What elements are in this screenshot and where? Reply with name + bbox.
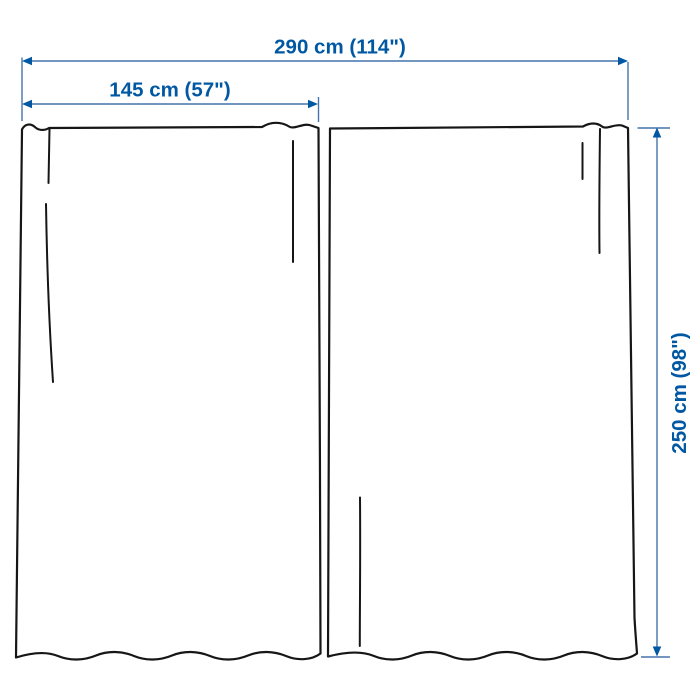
- curtain-fold-line: [599, 129, 600, 253]
- arrow-down-icon: [653, 647, 662, 657]
- height-label: 250 cm (98"): [668, 332, 691, 453]
- curtain-panel-right-outline: [328, 124, 637, 660]
- curtain-panel-left-outline: [16, 123, 321, 660]
- arrow-right-icon: [618, 57, 628, 66]
- panel-width-label: 145 cm (57"): [109, 79, 230, 102]
- diagram-canvas: 290 cm (114") 145 cm (57") 250 cm (98"): [0, 0, 700, 700]
- total-width-label: 290 cm (114"): [274, 36, 406, 59]
- arrow-left-icon: [22, 57, 32, 66]
- arrow-up-icon: [653, 128, 662, 138]
- curtain-dimension-diagram: 290 cm (114") 145 cm (57") 250 cm (98"): [0, 0, 700, 700]
- dimension-height: 250 cm (98"): [638, 128, 692, 658]
- curtain-panel-right: [328, 124, 637, 660]
- arrow-left-icon: [22, 100, 32, 109]
- curtain-fold-line: [49, 129, 50, 183]
- dimension-panel-width: 145 cm (57"): [22, 79, 319, 123]
- arrow-right-icon: [308, 100, 318, 109]
- curtain-panel-left: [16, 123, 321, 660]
